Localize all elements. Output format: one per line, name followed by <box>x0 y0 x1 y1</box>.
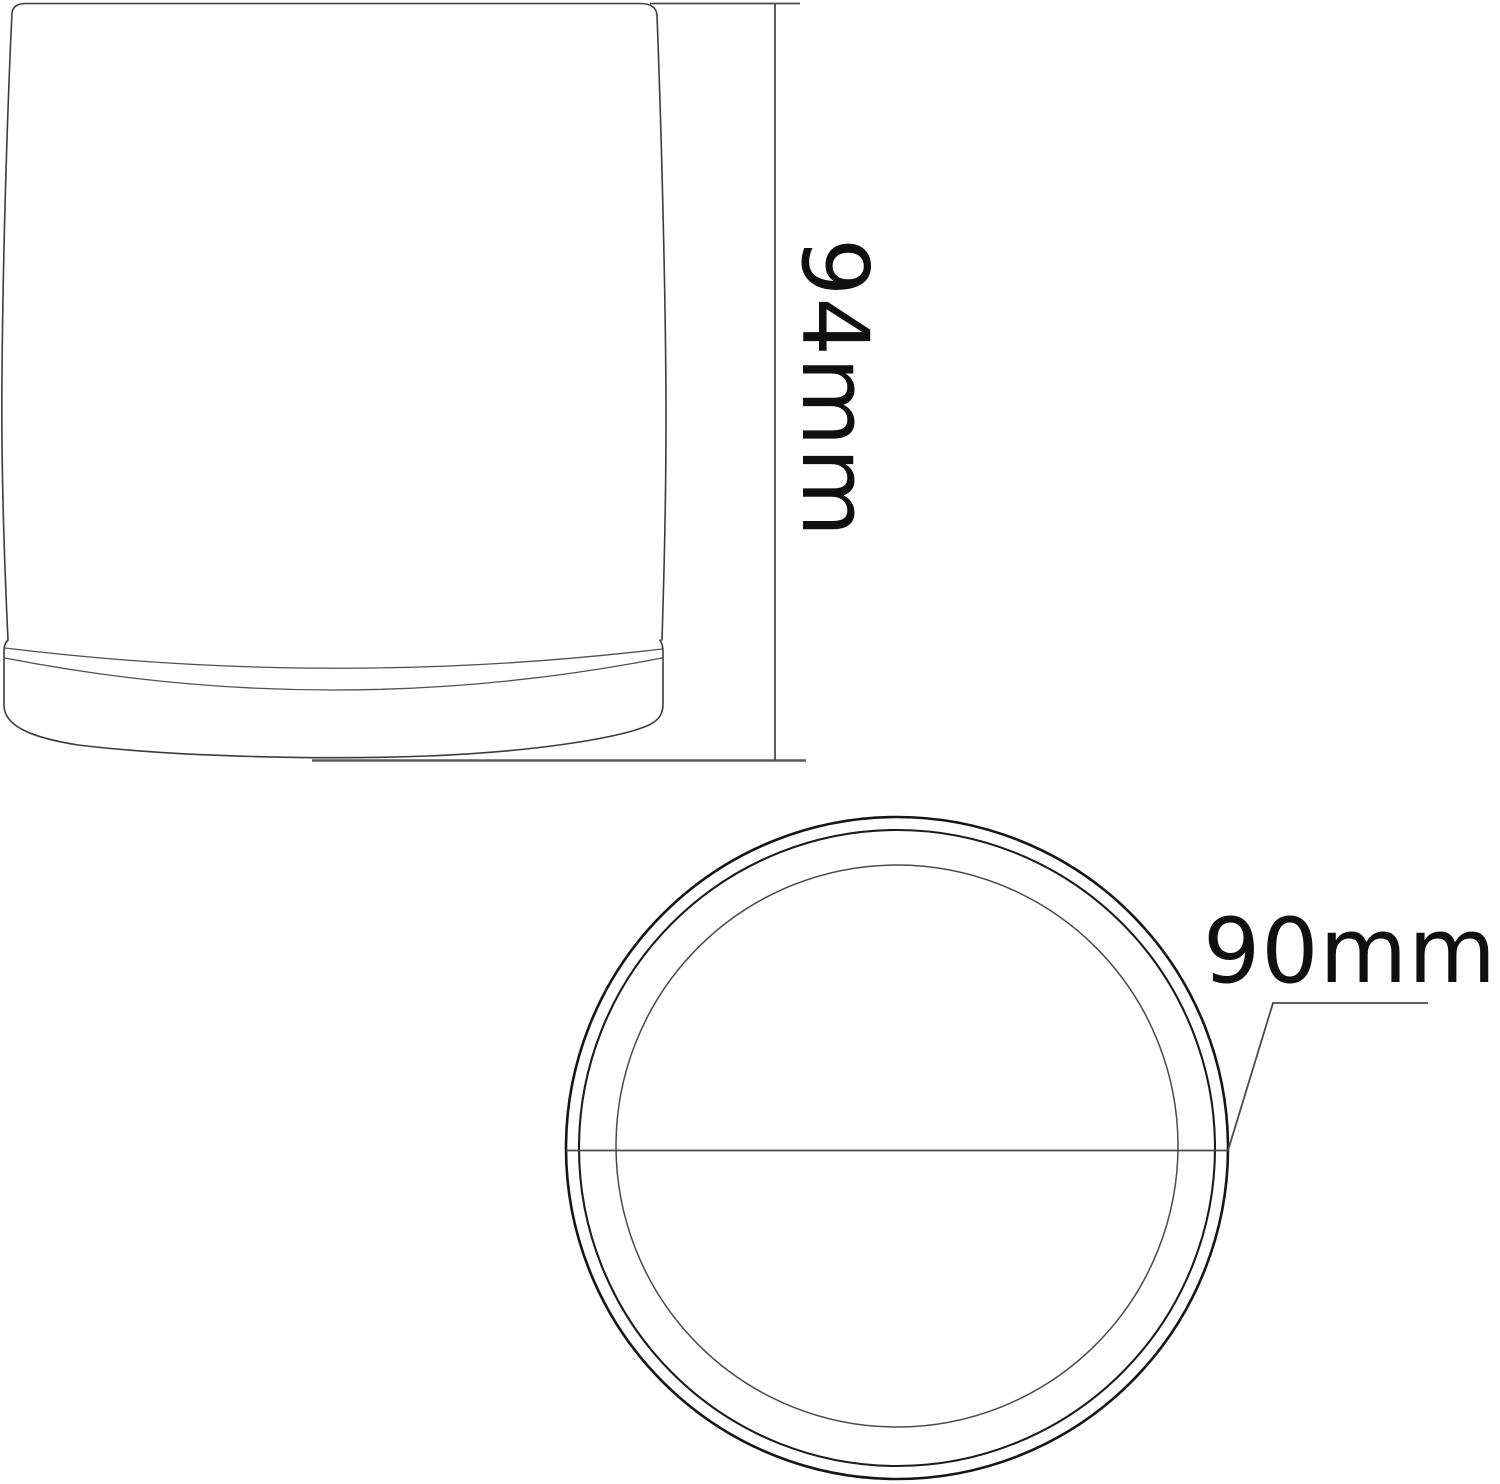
technical-drawing: 94mm 90mm <box>0 0 1500 1484</box>
cylinder-body-outline <box>2 4 666 641</box>
diameter-dimension-label: 90mm <box>1203 899 1497 1004</box>
inner-circle <box>616 865 1178 1427</box>
outer-circle <box>566 817 1228 1479</box>
rim-bead-line <box>5 658 662 690</box>
rim-seam-line <box>5 648 662 668</box>
diameter-leader-line <box>1228 1003 1428 1151</box>
side-view: 94mm <box>2 4 888 761</box>
top-view: 90mm <box>566 817 1497 1479</box>
height-dimension-label: 94mm <box>781 238 888 538</box>
middle-circle <box>579 830 1215 1466</box>
dimension-drawing-page: 94mm 90mm <box>0 0 1500 1484</box>
